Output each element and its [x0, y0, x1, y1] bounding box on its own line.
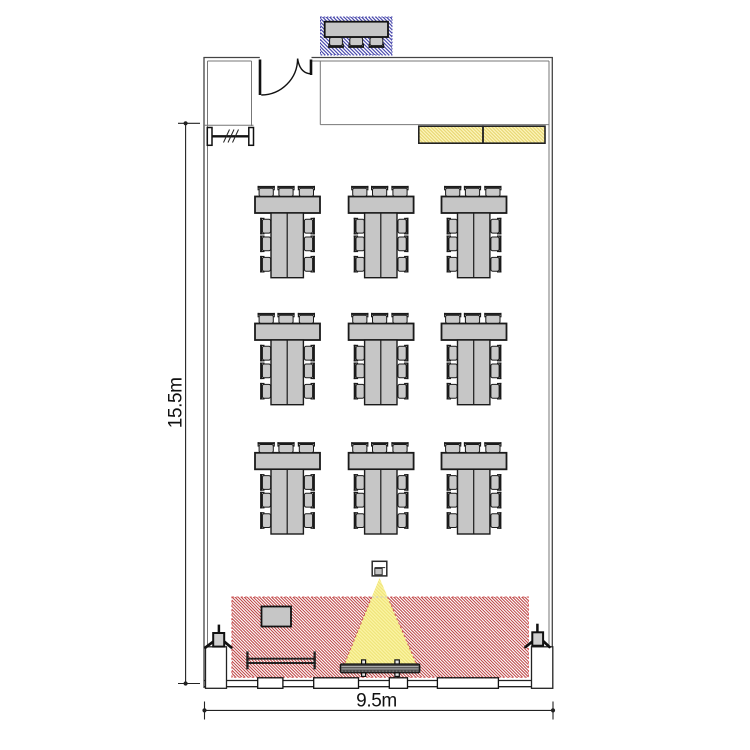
svg-text:15.5m: 15.5m: [166, 377, 187, 428]
svg-text:9.5m: 9.5m: [356, 691, 397, 712]
